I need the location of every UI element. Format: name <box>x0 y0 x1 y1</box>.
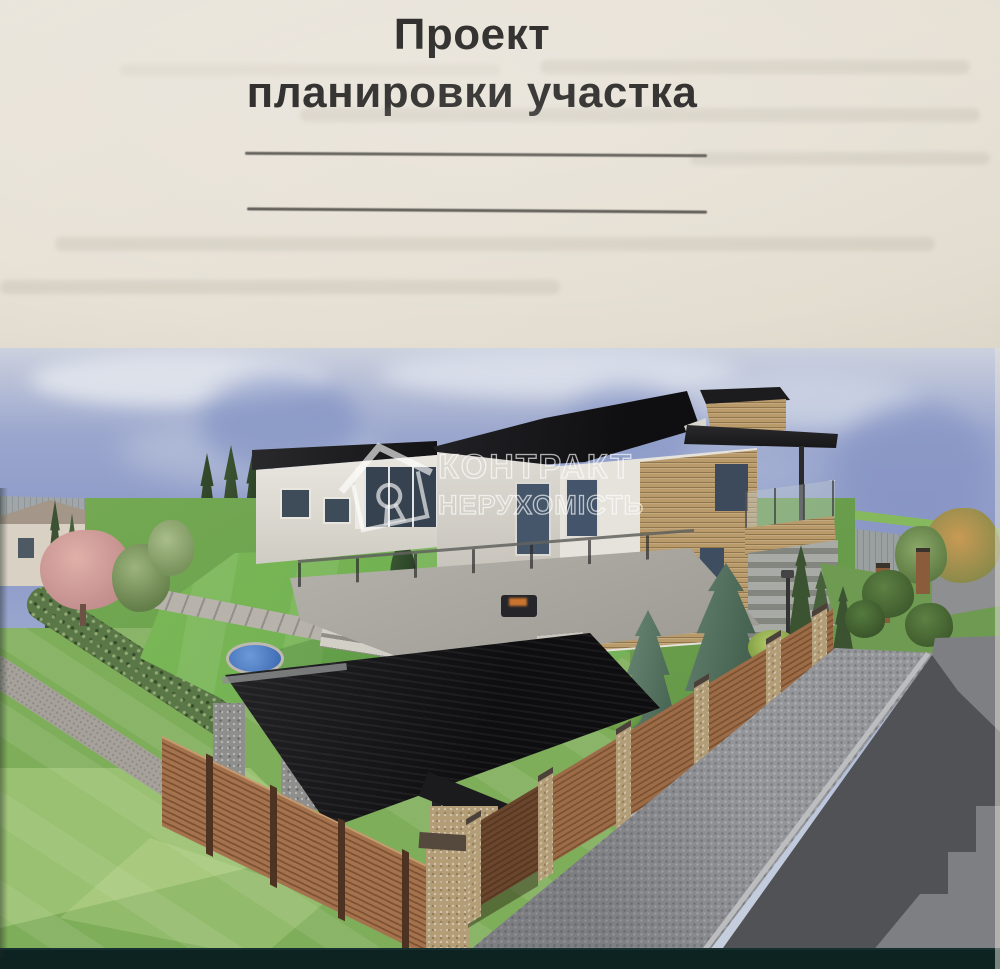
watermark-brand-line-1: КОНТРАКТ <box>438 448 633 486</box>
photo-right-edge-line <box>995 348 1000 969</box>
fence-stone-pillar <box>466 810 481 925</box>
cloud <box>380 348 740 398</box>
boxwood-ball-shrub <box>845 600 885 638</box>
tree-trunk <box>80 604 86 626</box>
paper-vignette <box>0 0 1000 348</box>
watermark: КОНТРАКТ НЕРУХОМІСТЬ <box>338 436 660 544</box>
photo-bottom-edge-strip <box>0 948 1000 969</box>
paper-page: Проект планировки участка <box>0 0 1000 348</box>
green-tree <box>148 520 194 576</box>
fence-post <box>402 849 409 952</box>
site-plan-3d-render: КОНТРАКТ НЕРУХОМІСТЬ <box>0 348 1000 969</box>
fence-stone-pillar <box>616 720 631 835</box>
fire-pit <box>501 595 537 617</box>
fire-pit-flame <box>509 598 527 606</box>
neighbour-house-window <box>18 538 34 558</box>
corner-stone-pillar <box>426 843 470 953</box>
fence-post <box>270 785 277 888</box>
wing-window <box>280 488 311 519</box>
fence-stone-pillar <box>538 767 553 882</box>
fence-post <box>206 753 213 856</box>
house-keyhole-icon <box>338 437 440 532</box>
watermark-brand-line-2: НЕРУХОМІСТЬ <box>438 490 644 520</box>
garden-fence-post <box>916 548 930 594</box>
photo-of-site-plan-document: Проект планировки участка <box>0 0 1000 969</box>
balcony-door <box>715 464 748 511</box>
fence-post <box>338 818 345 921</box>
photo-left-edge-shadow <box>0 488 8 958</box>
lamp-head <box>781 570 794 578</box>
